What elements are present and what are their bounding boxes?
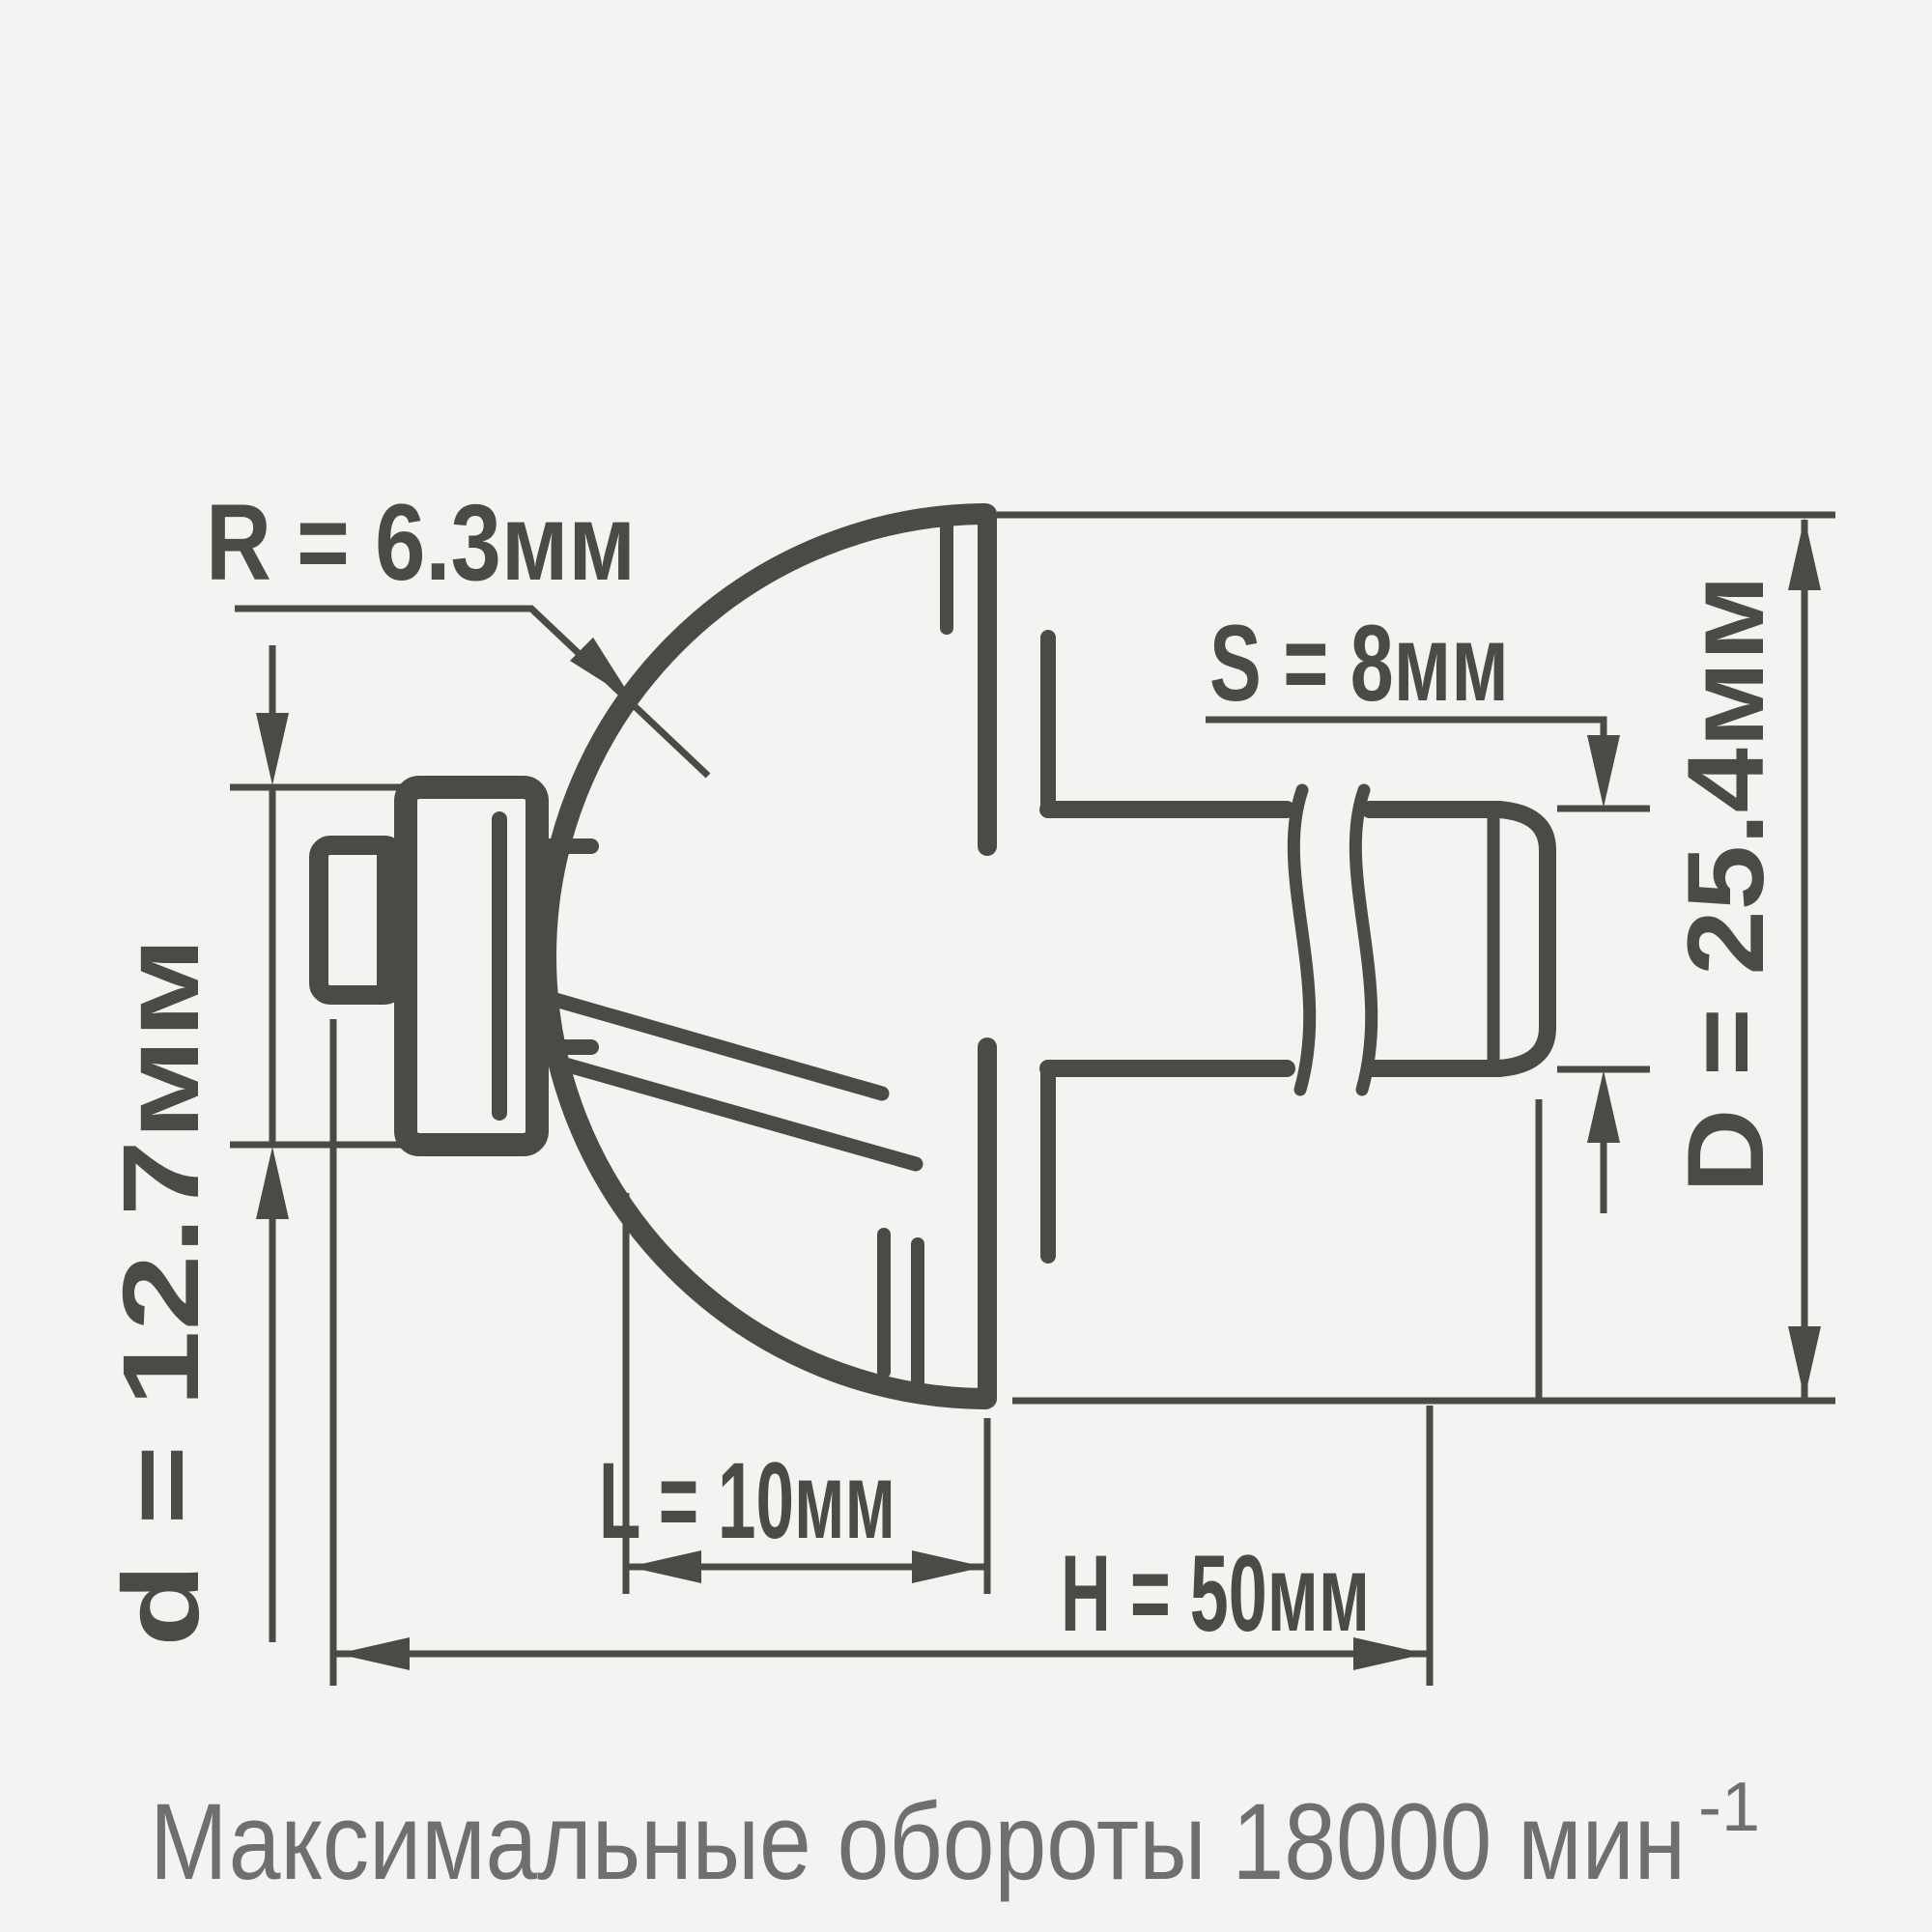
caption-text: Максимальные обороты 18000 мин xyxy=(150,1781,1686,1902)
pilot-bearing xyxy=(406,787,537,1145)
caption: Максимальные обороты 18000 мин -1 xyxy=(150,1769,1760,1902)
diameter-label: D = 25.4мм xyxy=(1665,575,1786,1193)
cutter-head-profile xyxy=(546,514,1048,1399)
router-bit-technical-drawing: R = 6.3мм S = 8мм D = 25.4мм xyxy=(0,0,1932,1932)
caption-superscript: -1 xyxy=(1698,1769,1760,1846)
shank-label: S = 8мм xyxy=(1209,603,1509,724)
screw-head xyxy=(319,845,396,995)
shank xyxy=(1048,790,1548,1090)
overall-label: H = 50мм xyxy=(1061,1533,1370,1654)
break-symbol xyxy=(1355,790,1371,1090)
shank-end-cap xyxy=(1499,810,1548,1068)
radius-label: R = 6.3мм xyxy=(206,482,636,603)
bearing-label: d = 12.7мм xyxy=(100,937,221,1647)
break-symbol xyxy=(1293,790,1309,1090)
length-label: L = 10мм xyxy=(599,1440,895,1561)
dimension-shank-diameter: S = 8мм xyxy=(1206,603,1650,1213)
flute-edge-lower xyxy=(565,1065,916,1164)
diagram-canvas: R = 6.3мм S = 8мм D = 25.4мм xyxy=(0,0,1932,1932)
